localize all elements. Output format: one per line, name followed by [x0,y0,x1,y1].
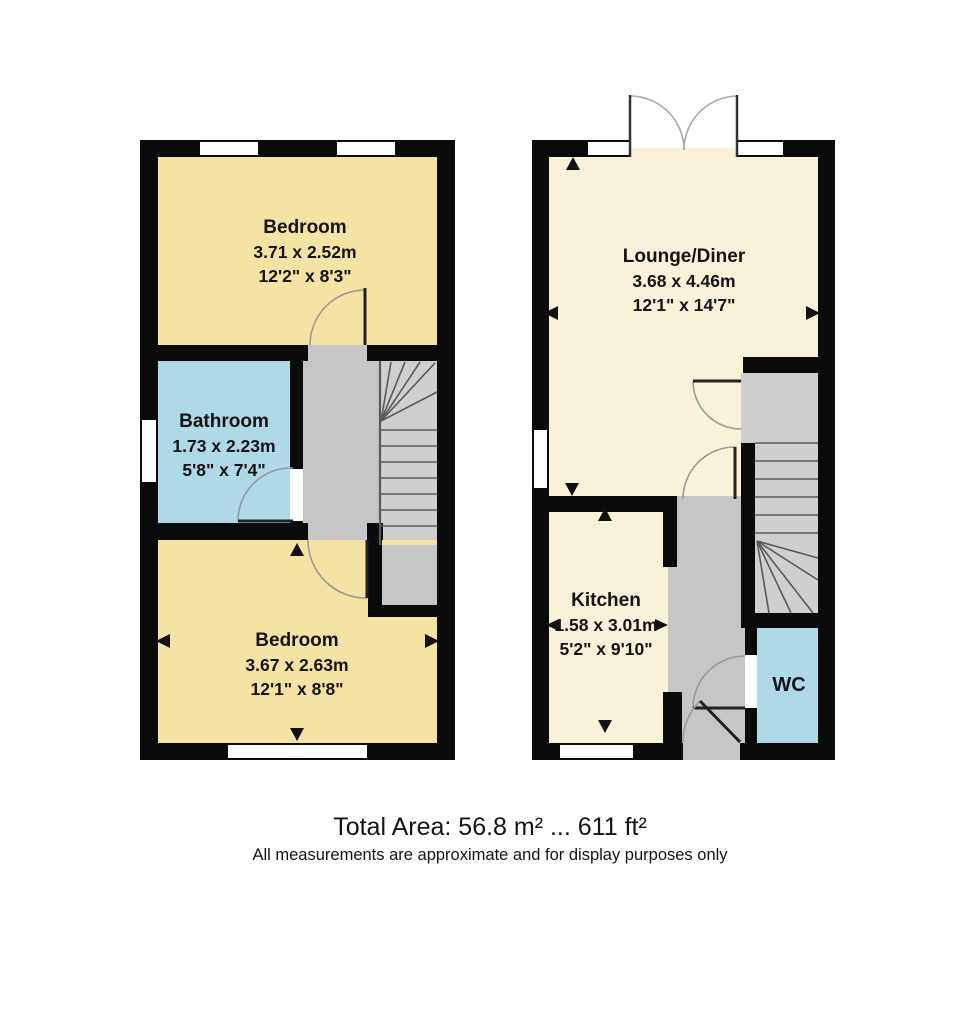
stair-treads-icon [755,443,818,613]
door-swing-icon [310,288,365,345]
floorplan-canvas: Bedroom 3.71 x 2.52m 12'2" x 8'3" Bathro… [0,0,980,1012]
door-swing-icon [693,656,745,708]
stair-treads-icon [380,361,437,545]
measure-arrow-icon [156,543,439,741]
door-swing-icon [308,540,367,598]
measure-arrow-icon [544,157,820,733]
door-swing-icon [683,447,735,499]
french-doors-icon [630,95,737,157]
door-swing-icon [693,381,741,429]
disclaimer-text: All measurements are approximate and for… [252,846,727,865]
door-swing-icon [238,468,293,521]
total-area-text: Total Area: 56.8 m² ... 611 ft² [333,813,647,842]
